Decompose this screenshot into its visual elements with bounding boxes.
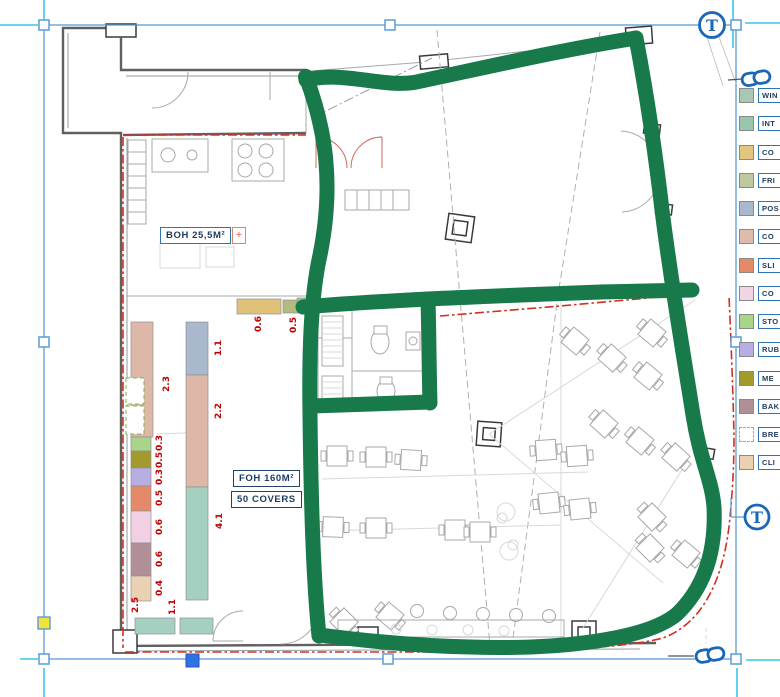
floorplan-svg: T T <box>0 0 780 697</box>
text-anchor-icon[interactable]: T <box>731 498 769 529</box>
blue-anchor-handle[interactable] <box>186 654 199 667</box>
covers-label[interactable]: 50 COVERS <box>231 491 302 508</box>
boh-add-button[interactable]: + <box>232 227 246 244</box>
link-icon[interactable] <box>668 628 725 663</box>
handle-top-right[interactable] <box>731 20 741 30</box>
handle-mid-right[interactable] <box>731 337 741 347</box>
svg-text:T: T <box>706 16 718 35</box>
selection-frame <box>0 0 780 697</box>
equipment-bars <box>131 298 310 634</box>
handle-bottom-right[interactable] <box>731 654 741 664</box>
handle-top-mid[interactable] <box>385 20 395 30</box>
design-canvas: T T BOH 25,5M² + FOH 160M² 50 COVERS WIN… <box>0 0 780 697</box>
boh-area-label[interactable]: BOH 25,5M² <box>160 227 231 244</box>
yellow-adjust-handle[interactable] <box>38 617 50 629</box>
svg-text:T: T <box>751 508 763 527</box>
handle-bottom-mid[interactable] <box>383 654 393 664</box>
floorplan <box>63 24 734 653</box>
handle-mid-left[interactable] <box>39 337 49 347</box>
handle-top-left[interactable] <box>39 20 49 30</box>
handle-bottom-left[interactable] <box>39 654 49 664</box>
foh-area-label[interactable]: FOH 160M² <box>233 470 300 487</box>
